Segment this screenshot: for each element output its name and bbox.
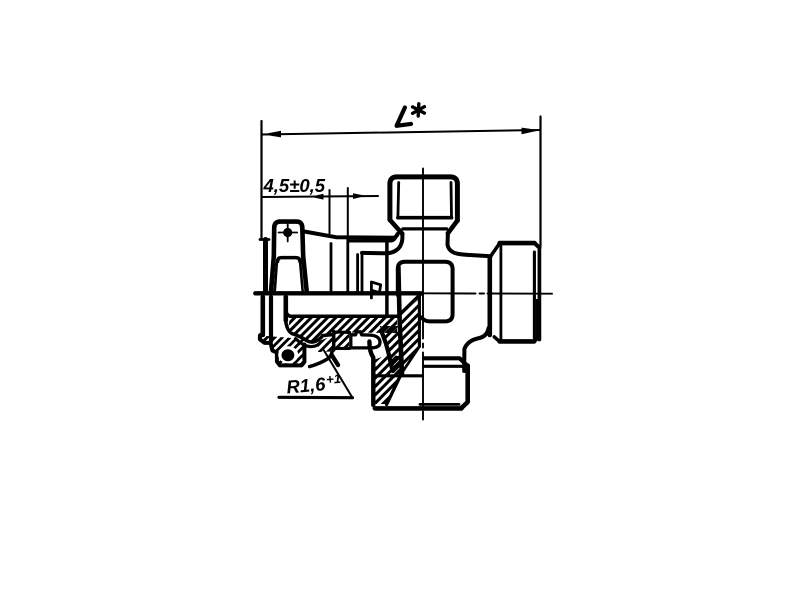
svg-text:+1: +1 [325,371,341,387]
svg-text:R1,6: R1,6 [286,373,327,397]
svg-text:4,5±0,5: 4,5±0,5 [263,175,326,196]
